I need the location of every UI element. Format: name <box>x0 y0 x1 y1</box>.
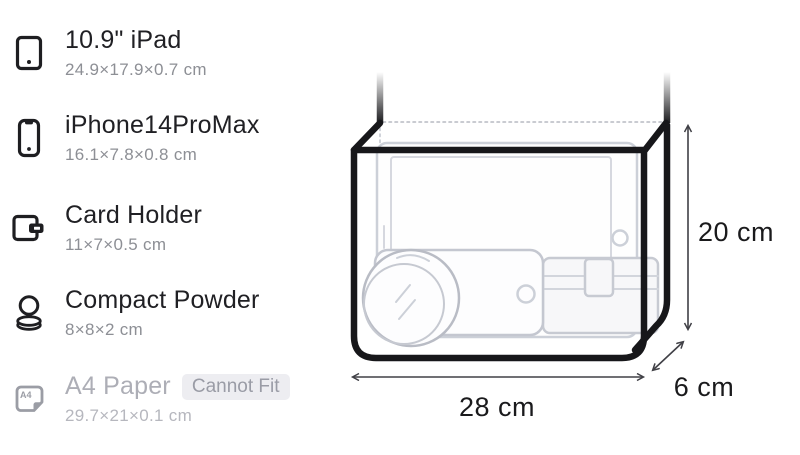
compact-powder-icon <box>12 295 46 331</box>
height-label: 20 cm <box>698 217 774 247</box>
bag-capacity-infographic: 10.9" iPad 24.9×17.9×0.7 cm iPhone14ProM… <box>0 0 800 455</box>
ghost-compact-powder <box>363 250 459 346</box>
item-name: Compact Powder <box>65 286 260 315</box>
bag-contents-ghost <box>363 143 658 346</box>
list-item-card-holder: Card Holder 11×7×0.5 cm <box>12 201 202 255</box>
item-name: 10.9" iPad <box>65 26 207 55</box>
item-dimensions: 24.9×17.9×0.7 cm <box>65 60 207 80</box>
tablet-icon <box>12 35 46 71</box>
item-dimensions: 29.7×21×0.1 cm <box>65 406 290 426</box>
a4-icon-label: A4 <box>20 390 32 400</box>
item-dimensions: 16.1×7.8×0.8 cm <box>65 145 260 165</box>
bag-top-right-edge <box>645 123 666 150</box>
item-name: Card Holder <box>65 201 202 230</box>
list-item-iphone: iPhone14ProMax 16.1×7.8×0.8 cm <box>12 111 260 165</box>
depth-label: 6 cm <box>674 372 735 402</box>
item-dimensions: 11×7×0.5 cm <box>65 235 202 255</box>
smartphone-icon <box>12 118 46 158</box>
a4-paper-icon: A4 <box>12 384 46 414</box>
width-label: 28 cm <box>459 392 535 422</box>
list-item-ipad: 10.9" iPad 24.9×17.9×0.7 cm <box>12 26 207 80</box>
list-item-compact-powder: Compact Powder 8×8×2 cm <box>12 286 260 340</box>
bag-dimension-diagram: 20 cm 28 cm 6 cm <box>330 0 800 455</box>
wallet-icon <box>12 214 46 242</box>
item-name: iPhone14ProMax <box>65 111 260 140</box>
list-item-a4-paper: A4 A4 Paper Cannot Fit 29.7×21×0.1 cm <box>12 372 290 426</box>
item-name: A4 Paper <box>65 372 171 401</box>
bag-top-left-edge <box>354 123 380 150</box>
item-list: 10.9" iPad 24.9×17.9×0.7 cm iPhone14ProM… <box>0 0 330 455</box>
item-dimensions: 8×8×2 cm <box>65 320 260 340</box>
cannot-fit-badge: Cannot Fit <box>182 374 290 400</box>
depth-arrow <box>653 342 683 370</box>
